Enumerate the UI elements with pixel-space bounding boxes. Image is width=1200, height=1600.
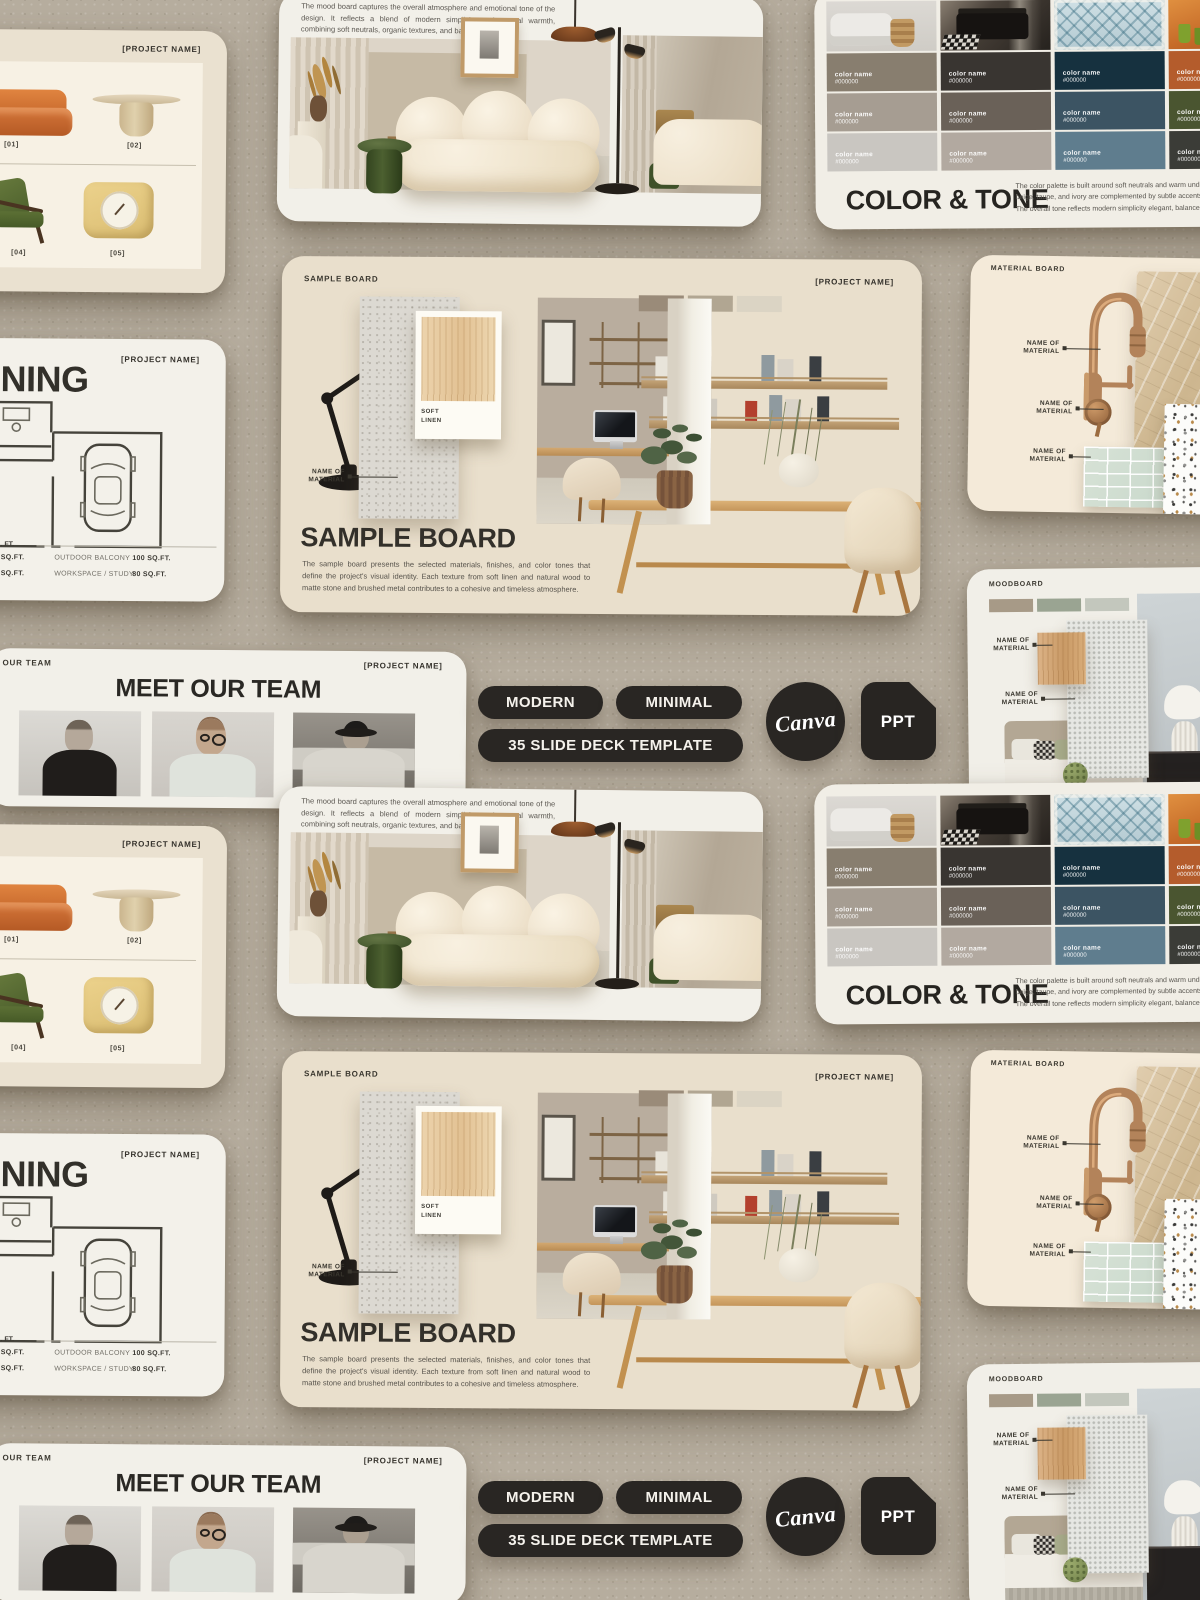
wall-art-graphic	[541, 320, 575, 386]
slide-color-tone: color name #000000 color name #000000 co…	[814, 781, 1200, 1024]
pointer-line	[1032, 644, 1052, 646]
material-label: NAME OF MATERIAL	[1000, 690, 1075, 708]
color-swatch	[737, 1091, 782, 1107]
brass-chest-graphic	[656, 905, 694, 935]
project-name-label: [PROJECT NAME]	[122, 44, 201, 54]
color-swatch: color name #000000	[941, 132, 1051, 171]
wood-sample-image	[421, 1112, 496, 1196]
color-swatch: color name #000000	[1169, 885, 1200, 924]
material-board-header: MATERIAL BOARD	[991, 265, 1065, 273]
color-swatch: color name #000000	[827, 133, 937, 172]
palette-photo-rug	[1054, 794, 1164, 845]
pointer-line	[1032, 1439, 1052, 1441]
moodboard-header: MOODBOARD	[989, 1376, 1044, 1384]
cream-chair-graphic	[836, 1282, 922, 1411]
pointer-line	[1076, 1203, 1104, 1205]
slide-sample-board: SAMPLE BOARD [PROJECT NAME] SOFT LINEN	[280, 1051, 922, 1411]
sample-board-description: The sample board presents the selected m…	[302, 558, 590, 596]
area-table-row: 0 SQ.FT. WORKSPACE / STUDY 80 SQ.FT.	[0, 570, 214, 572]
color-swatch: color name #000000	[827, 53, 937, 92]
color-swatch: color name #000000	[1055, 131, 1165, 170]
color-swatch: color name #000000	[1055, 51, 1165, 90]
color-swatch: color name #000000	[941, 847, 1051, 886]
team-member-photo	[18, 710, 141, 796]
pointer-line	[348, 1271, 398, 1273]
nightstand-graphic	[1147, 1545, 1200, 1600]
material-board-header: MATERIAL BOARD	[991, 1060, 1065, 1068]
canva-logo: Canva	[766, 1477, 845, 1556]
vase-graphic	[310, 890, 327, 916]
planning-title: NING	[0, 1153, 88, 1196]
color-swatch: color name #000000	[1169, 130, 1200, 169]
project-name-label: [PROJECT NAME]	[364, 1456, 443, 1466]
pedestal-table-graphic	[92, 889, 180, 934]
office-photo	[536, 298, 711, 525]
slide-planning: [PROJECT NAME] NING	[0, 336, 226, 601]
pointer-line	[1076, 408, 1104, 410]
slide-material-board: MATERIAL BOARD NAME OF MATERIAL NAME OF …	[967, 255, 1200, 516]
tag-minimal: MINIMAL	[616, 686, 742, 719]
green-table-graphic	[649, 958, 679, 984]
linen-swatch-card: SOFT LINEN	[415, 1106, 502, 1235]
pillow-graphic	[1033, 741, 1055, 760]
green-armchair-graphic	[0, 177, 62, 244]
ppt-file-badge: PPT	[860, 1477, 936, 1555]
tag-slide-deck: 35 SLIDE DECK TEMPLATE	[478, 1524, 743, 1557]
color-swatch: color name #000000	[941, 927, 1051, 966]
team-member-photo	[151, 711, 274, 797]
area-note-fragment: . FT.	[0, 541, 14, 548]
color-swatch	[1037, 1393, 1081, 1406]
material-label: NAME OF MATERIAL	[1000, 1485, 1075, 1503]
slide-mood-board: The mood board captures the overall atmo…	[277, 786, 764, 1022]
color-swatch: color name #000000	[1055, 91, 1165, 130]
bubble-sofa-graphic	[395, 92, 600, 192]
orange-sofa-graphic	[0, 884, 73, 931]
material-label: NAME OF MATERIAL	[991, 637, 1052, 655]
vase-graphic	[310, 95, 327, 121]
bubble-cushion-graphic	[1063, 1557, 1088, 1582]
collage-tile: MOODBOARD NAME OF MATERIAL NAME OF MATER…	[0, 0, 1200, 795]
color-swatch: color name #000000	[941, 92, 1051, 131]
color-tone-description: The color palette is built around soft n…	[1016, 974, 1200, 1010]
material-label: NAME OF MATERIAL	[1028, 1243, 1091, 1261]
furniture-panel: [01] [02] [04] [05]	[0, 856, 203, 1064]
color-swatch: color name #000000	[941, 887, 1051, 926]
floor-lamp-graphic	[589, 19, 649, 196]
color-swatch: color name #000000	[1055, 846, 1165, 885]
slide-moodboard: MOODBOARD NAME OF MATERIAL NAME OF MATER…	[967, 1361, 1200, 1600]
color-swatch	[737, 296, 782, 312]
slide-color-tone: color name #000000 color name #000000 co…	[814, 0, 1200, 230]
palette-photo-orange-chair	[1168, 0, 1200, 49]
color-swatch: color name #000000	[827, 93, 937, 132]
color-swatch: color name #000000	[827, 928, 937, 967]
color-swatch: color name #000000	[941, 52, 1051, 91]
swatch-caption: SOFT LINEN	[421, 408, 451, 426]
material-label: NAME OF MATERIAL	[1034, 400, 1103, 418]
slide-furniture-index: [PROJECT NAME] [01] [02] [04] [05]	[0, 824, 227, 1088]
terrazzo-material-swatch	[1163, 404, 1200, 515]
team-member-photo	[151, 1506, 274, 1592]
color-swatch: color name #000000	[1169, 845, 1200, 884]
slide-planning: [PROJECT NAME] NING	[0, 1131, 226, 1396]
hat-graphic	[335, 1523, 377, 1532]
slide-meet-our-team: OUR TEAM [PROJECT NAME] MEET OUR TEAM	[0, 1443, 467, 1600]
sample-board-description: The sample board presents the selected m…	[302, 1353, 590, 1391]
pointer-line	[1063, 1143, 1101, 1145]
slide-mood-board: The mood board captures the overall atmo…	[277, 0, 764, 227]
glasses-graphic	[200, 1529, 210, 1537]
tag-modern: MODERN	[478, 1481, 603, 1514]
project-name-label: [PROJECT NAME]	[364, 661, 443, 671]
pointer-line	[1069, 456, 1091, 458]
green-table-graphic	[649, 163, 679, 189]
green-side-table-graphic	[357, 138, 412, 197]
color-swatch: color name #000000	[1055, 926, 1165, 965]
color-swatch	[1037, 598, 1081, 611]
slide-meet-our-team: OUR TEAM [PROJECT NAME] MEET OUR TEAM	[0, 648, 467, 810]
blanket-graphic	[1005, 1587, 1143, 1600]
pointer-line	[1041, 698, 1075, 700]
sample-board-header: SAMPLE BOARD	[304, 274, 379, 283]
floor-lamp-graphic	[589, 814, 649, 991]
bubble-sofa-graphic	[395, 887, 600, 987]
color-swatch: color name #000000	[827, 848, 937, 887]
material-label: NAME OF MATERIAL	[1034, 1195, 1103, 1213]
desk-chair-graphic	[562, 458, 620, 524]
ppt-label: PPT	[860, 712, 936, 732]
tag-modern: MODERN	[478, 686, 603, 719]
color-swatch	[1085, 1393, 1129, 1406]
material-label: NAME OF MATERIAL	[307, 468, 398, 485]
project-name-label: [PROJECT NAME]	[815, 277, 894, 286]
ppt-label: PPT	[860, 1507, 936, 1527]
floor-plan-drawing	[0, 1193, 185, 1345]
vase-with-branches-graphic	[749, 393, 850, 494]
moodboard-header: MOODBOARD	[989, 581, 1044, 589]
team-title: MEET OUR TEAM	[78, 674, 358, 705]
computer-graphic	[593, 410, 637, 442]
divider-line	[0, 958, 196, 961]
slide-sample-board: SAMPLE BOARD [PROJECT NAME] SOFT LINEN	[280, 256, 922, 616]
hat-graphic	[335, 728, 377, 737]
potted-plant-graphic	[634, 408, 705, 518]
swatch-caption: SOFT LINEN	[421, 1203, 451, 1221]
material-label: NAME OF MATERIAL	[307, 1263, 398, 1280]
sample-board-header: SAMPLE BOARD	[304, 1069, 379, 1078]
material-label: NAME OF MATERIAL	[1028, 448, 1091, 466]
color-swatch: color name #000000	[1169, 50, 1200, 89]
pointer-line	[1041, 1493, 1075, 1495]
sample-board-title: SAMPLE BOARD	[300, 522, 516, 554]
team-corner-label: OUR TEAM	[2, 1453, 51, 1462]
area-table-row: 0 SQ.FT. OUTDOOR BALCONY 100 SQ.FT.	[0, 554, 214, 556]
furniture-panel: [01] [02] [04] [05]	[0, 61, 203, 269]
color-swatch	[1085, 598, 1129, 611]
ppt-file-badge: PPT	[860, 682, 936, 760]
pedestal-table-graphic	[92, 94, 180, 139]
area-table-row: 0 SQ.FT. WORKSPACE / STUDY 80 SQ.FT.	[0, 1365, 214, 1367]
project-name-label: [PROJECT NAME]	[121, 1150, 200, 1160]
color-swatch: color name #000000	[1055, 886, 1165, 925]
cream-chair-graphic	[836, 487, 922, 616]
palette-photo-dark-lounge	[940, 795, 1050, 846]
palette-photo-orange-chair	[1168, 793, 1200, 844]
team-corner-label: OUR TEAM	[2, 658, 51, 667]
computer-graphic	[593, 1205, 637, 1237]
desk-chair-graphic	[562, 1253, 620, 1319]
green-side-table-graphic	[357, 933, 412, 992]
tag-minimal: MINIMAL	[616, 1481, 742, 1514]
team-member-photo	[18, 1505, 141, 1591]
project-name-label: [PROJECT NAME]	[815, 1072, 894, 1081]
collage-tile: MOODBOARD NAME OF MATERIAL NAME OF MATER…	[0, 795, 1200, 1590]
material-label: NAME OF MATERIAL	[1021, 340, 1100, 358]
linen-swatch-card: SOFT LINEN	[415, 311, 502, 440]
pointer-line	[1063, 348, 1101, 350]
material-label: NAME OF MATERIAL	[991, 1432, 1052, 1450]
framed-art-graphic	[460, 17, 519, 78]
canva-logo: Canva	[766, 682, 845, 761]
color-swatch: color name #000000	[827, 888, 937, 927]
color-swatch: color name #000000	[1169, 90, 1200, 129]
material-label: NAME OF MATERIAL	[1021, 1135, 1100, 1153]
palette-photo-dark-lounge	[940, 0, 1050, 51]
green-armchair-graphic	[0, 972, 62, 1039]
slide-material-board: MATERIAL BOARD NAME OF MATERIAL NAME OF …	[967, 1050, 1200, 1311]
potted-plant-graphic	[634, 1203, 705, 1313]
wood-sample-image	[421, 317, 496, 401]
divider-line	[0, 163, 196, 166]
brass-chest-graphic	[656, 110, 694, 140]
slide-furniture-index: [PROJECT NAME] [01] [02] [04] [05]	[0, 29, 227, 293]
wall-clock-graphic	[83, 182, 153, 239]
sample-board-title: SAMPLE BOARD	[300, 1317, 516, 1349]
wall-clock-graphic	[83, 977, 153, 1034]
glasses-graphic	[200, 734, 210, 742]
armchair-graphic	[289, 135, 323, 188]
color-swatch	[989, 599, 1033, 612]
orange-sofa-graphic	[0, 89, 73, 136]
template-promo-poster: MOODBOARD NAME OF MATERIAL NAME OF MATER…	[0, 0, 1200, 1600]
team-title: MEET OUR TEAM	[78, 1469, 358, 1500]
color-swatch	[989, 1394, 1033, 1407]
project-name-label: [PROJECT NAME]	[122, 839, 201, 849]
area-table-row: 0 SQ.FT. OUTDOOR BALCONY 100 SQ.FT.	[0, 1349, 214, 1351]
color-tone-description: The color palette is built around soft n…	[1016, 179, 1200, 215]
framed-art-graphic	[460, 812, 519, 873]
color-swatch: color name #000000	[1169, 925, 1200, 964]
project-name-label: [PROJECT NAME]	[121, 355, 200, 365]
terrazzo-material-swatch	[1163, 1199, 1200, 1310]
palette-photo-sofa	[826, 796, 936, 847]
office-photo	[536, 1093, 711, 1320]
team-member-photo	[292, 1508, 415, 1594]
pointer-line	[1069, 1251, 1091, 1253]
armchair-graphic	[289, 930, 323, 983]
planning-title: NING	[0, 358, 88, 401]
palette-photo-rug	[1054, 0, 1164, 50]
vase-with-branches-graphic	[749, 1188, 850, 1289]
tag-slide-deck: 35 SLIDE DECK TEMPLATE	[478, 729, 743, 762]
pillow-graphic	[1033, 1536, 1055, 1555]
pointer-line	[348, 476, 398, 478]
floor-plan-drawing	[0, 398, 185, 550]
wall-art-graphic	[541, 1115, 575, 1181]
area-note-fragment: . FT.	[0, 1336, 14, 1343]
palette-photo-sofa	[826, 1, 936, 52]
